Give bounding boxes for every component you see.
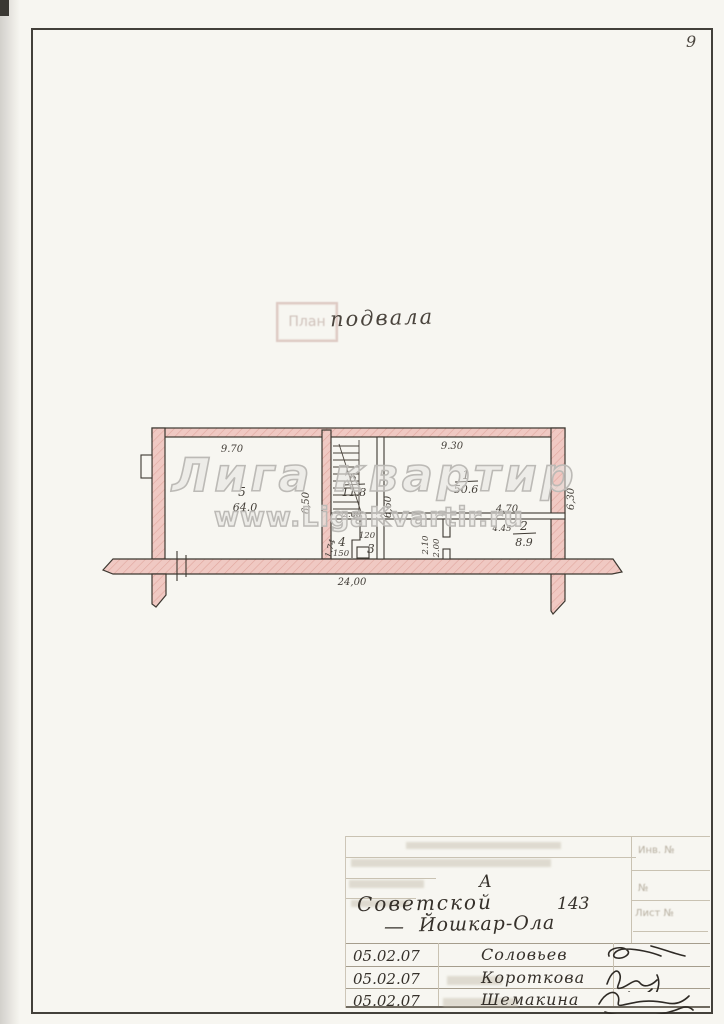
tb-line bbox=[631, 900, 710, 901]
sig-name-1: Соловьев bbox=[481, 945, 568, 964]
house-number-value: 143 bbox=[557, 894, 589, 914]
street-value: Советской bbox=[357, 890, 493, 916]
wall-base bbox=[103, 559, 622, 574]
wall-left bbox=[152, 428, 165, 559]
dim-room2-left-a: 2.10 bbox=[421, 535, 431, 556]
tb-line bbox=[346, 878, 436, 879]
title-block: Инв. № № Лист № А Советской 143 — Йошкар… bbox=[345, 836, 710, 1008]
partition-room2-left-b bbox=[443, 549, 450, 559]
signature-1 bbox=[599, 942, 707, 966]
faded-print bbox=[351, 859, 551, 867]
city-value: Йошкар-Ола bbox=[419, 912, 556, 936]
faded-num-label: № bbox=[638, 883, 648, 894]
sig-name-3: Шемакина bbox=[481, 990, 579, 1009]
dim-overall: 24,00 bbox=[337, 577, 367, 588]
sig-name-2: Короткова bbox=[481, 968, 585, 987]
tb-line bbox=[346, 836, 710, 837]
faded-print bbox=[349, 880, 424, 888]
tb-line bbox=[633, 931, 708, 932]
watermark-url: www.LigaKvartir.ru bbox=[214, 502, 524, 533]
tb-line bbox=[346, 857, 636, 858]
dim-room4-width: 150 bbox=[333, 549, 350, 559]
wall-top bbox=[152, 428, 565, 437]
wall-left-niche bbox=[141, 455, 152, 478]
wall-left-stub bbox=[152, 574, 166, 607]
room2-fraction-bar bbox=[513, 533, 536, 534]
room4-number: 4 bbox=[337, 535, 346, 549]
room2-area: 8.9 bbox=[515, 536, 533, 549]
sig-date-2: 05.02.07 bbox=[353, 970, 420, 988]
sig-date-1: 05.02.07 bbox=[353, 947, 420, 965]
faded-print bbox=[406, 842, 561, 849]
faded-inv-label: Инв. № bbox=[638, 845, 675, 856]
signature-3 bbox=[595, 986, 710, 1014]
watermark-brand: Лига квартир bbox=[172, 448, 578, 502]
sig-date-3: 05.02.07 bbox=[353, 992, 420, 1010]
scanned-page: 9 План подвала bbox=[0, 0, 724, 1024]
city-dash: — bbox=[384, 914, 404, 938]
room3-number: 3 bbox=[367, 542, 375, 556]
tb-col-line bbox=[438, 943, 439, 1006]
faded-sheet-label: Лист № bbox=[635, 908, 674, 919]
tb-col-line bbox=[631, 836, 632, 943]
tb-line bbox=[631, 870, 710, 871]
dim-room2-left-b: 2.00 bbox=[432, 538, 442, 559]
